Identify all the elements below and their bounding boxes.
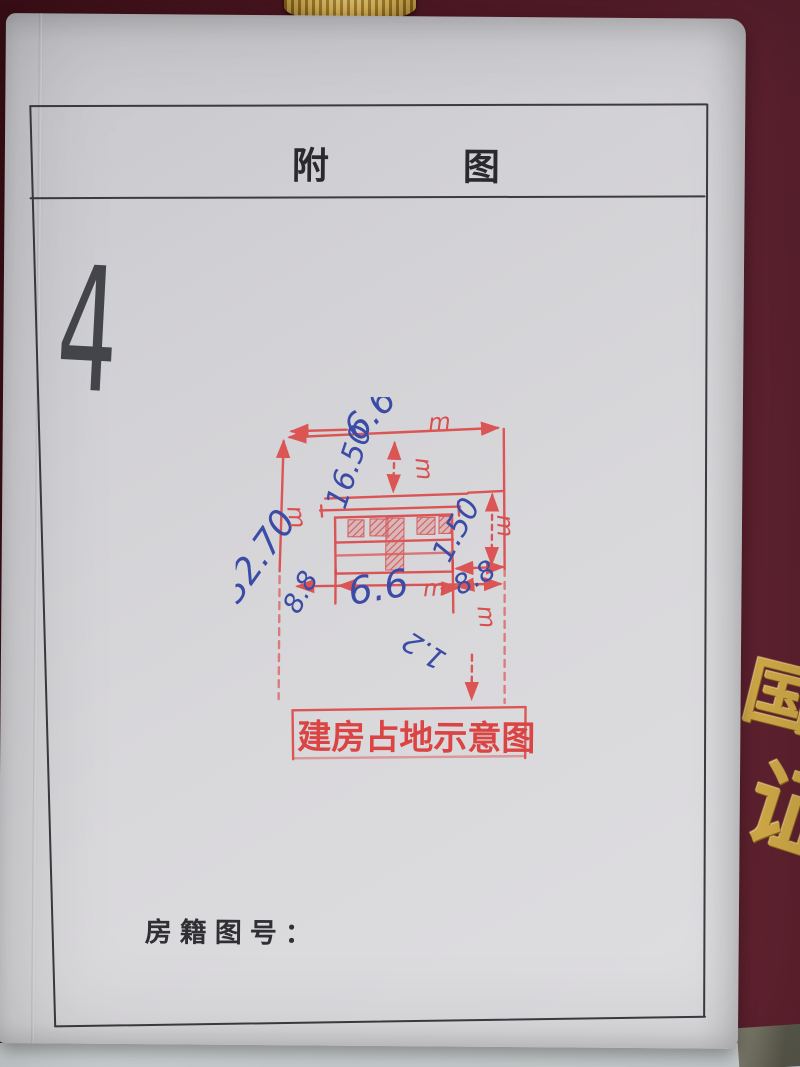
unit-right-height: m (491, 514, 518, 537)
map-number-label: 房籍图号： (145, 910, 320, 950)
dim-left-gap: 8.8 (277, 566, 325, 619)
unit-top-width: m (427, 409, 451, 436)
unit-right-gap: m (471, 604, 500, 630)
dim-house-width: 6.6 (345, 560, 412, 613)
dim-note: 1.2 (396, 624, 451, 676)
cover-embossed-character-lower: 证 (735, 756, 800, 874)
unit-house-width: m (423, 575, 447, 602)
unit-front-setback: m (410, 457, 438, 481)
frame-bottom-rule (54, 1016, 706, 1028)
frame-right-rule (703, 104, 708, 1018)
header-divider-rule (30, 195, 706, 199)
cover-corner-shadow (737, 1024, 800, 1067)
cover-embossed-character-upper: 国 (736, 654, 800, 741)
stamp-title: 建房占地示意图 (297, 718, 535, 758)
certificate-page: 附图 4 房籍图号： (0, 13, 746, 1049)
photo-of-certificate-page: 国 证 附图 4 房籍图号： (0, 0, 800, 1067)
page-title: 附图 (292, 135, 634, 192)
land-sketch-stamp: 6.6 m 16.50 m 32.70 m 8.8 6.6 m 8.8 m 1.… (234, 396, 537, 783)
unit-left-depth: m (281, 504, 310, 530)
handwritten-page-number: 4 (53, 243, 122, 418)
frame-top-rule (29, 103, 707, 107)
